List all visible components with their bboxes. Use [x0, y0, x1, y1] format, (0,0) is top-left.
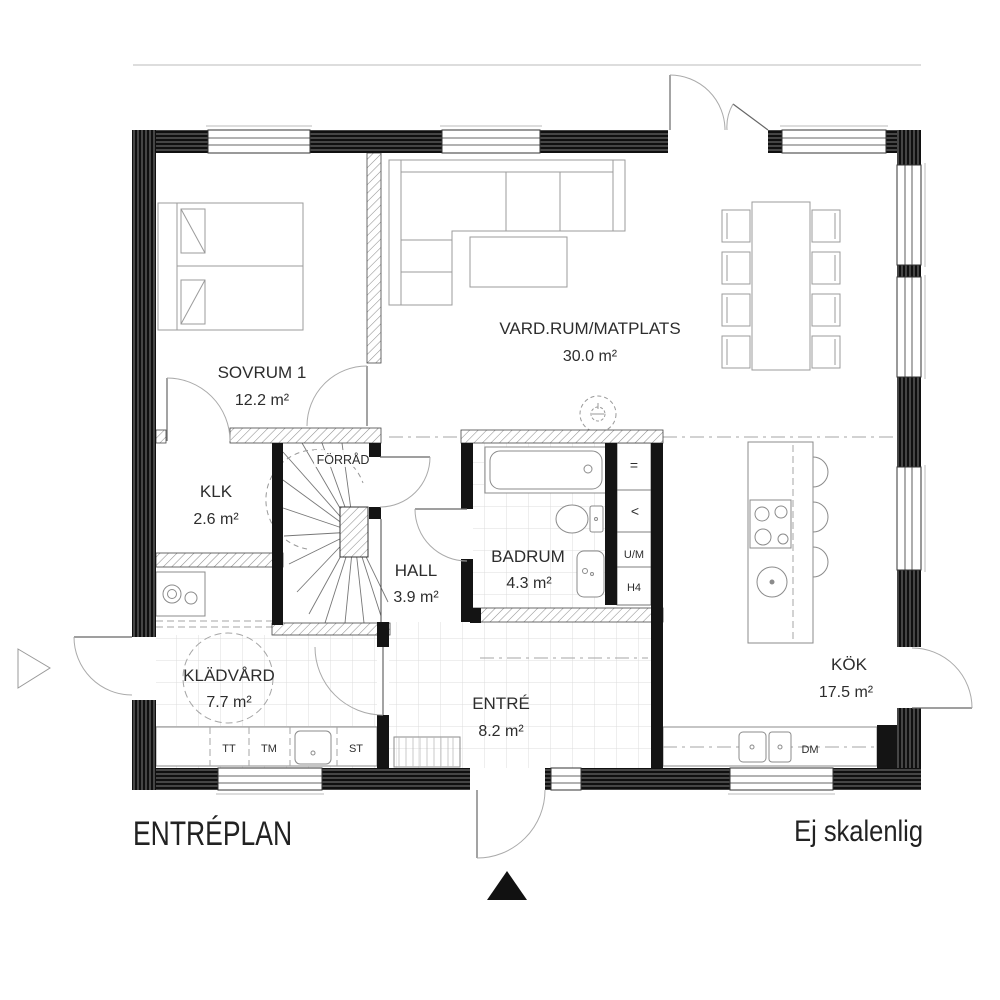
room-label-entre: ENTRÉ — [472, 694, 530, 713]
window — [216, 768, 324, 794]
window — [728, 768, 835, 794]
window — [440, 126, 542, 153]
room-area-klk: 2.6 m² — [193, 511, 239, 528]
bed — [158, 203, 303, 330]
window — [897, 275, 925, 379]
washer-dryer-cabinet-label: U/M — [624, 549, 644, 561]
room-area-badrum: 4.3 m² — [506, 575, 552, 592]
main-entrance-door — [477, 790, 545, 858]
scale-note: Ej skalenlig — [794, 814, 923, 847]
dining-table — [752, 202, 810, 370]
laundry-sink — [295, 731, 331, 764]
kitchen-sink — [739, 732, 791, 762]
room-area-hall: 3.9 m² — [393, 589, 439, 606]
room-label-forrad: FÖRRÅD — [317, 452, 370, 467]
utility-closet-column: = < U/M H4 — [617, 443, 651, 605]
room-area-kladvard: 7.7 m² — [206, 694, 252, 711]
window — [780, 126, 888, 153]
toilet — [556, 505, 603, 533]
room-label-klk: KLK — [200, 482, 233, 501]
room-label-hall: HALL — [395, 561, 438, 580]
kitchen-side-door — [912, 648, 972, 708]
window — [206, 126, 312, 153]
window — [551, 768, 581, 790]
cabinet-h4-label: H4 — [627, 582, 641, 594]
dishwasher-label: DM — [801, 744, 818, 756]
window — [897, 465, 925, 572]
room-label-badrum: BADRUM — [491, 547, 565, 566]
laundry-exterior-door — [74, 637, 132, 695]
bathroom-sink — [577, 551, 604, 597]
cleaning-closet-label: ST — [349, 743, 363, 755]
room-label-kladvard: KLÄDVÅRD — [183, 666, 275, 685]
shelf-symbol: = — [630, 457, 638, 473]
bathtub — [485, 447, 607, 493]
window — [897, 163, 925, 267]
room-area-kok: 17.5 m² — [819, 684, 874, 701]
plan-title: ENTRÉPLAN — [133, 814, 292, 853]
scale-note-group: Ej skalenlig — [794, 814, 923, 847]
entrance-marker-icon — [487, 871, 527, 900]
kitchen-counter: DM — [663, 727, 877, 766]
room-area-entre: 8.2 m² — [478, 723, 524, 740]
cooktop — [750, 500, 791, 548]
room-label-vardagsrum: VARD.RUM/MATPLATS — [499, 319, 680, 338]
washer-label: TM — [261, 743, 277, 755]
floor-plan-page: DM TT TM ST — [0, 0, 1000, 1000]
coffee-table — [470, 237, 567, 287]
rail-symbol: < — [631, 503, 639, 519]
room-label-kok: KÖK — [831, 655, 868, 674]
terrace-double-door — [670, 75, 768, 130]
stair-newel — [340, 507, 368, 557]
dryer-label: TT — [222, 743, 236, 755]
room-area-sovrum: 12.2 m² — [235, 392, 290, 409]
plan-title-group: ENTRÉPLAN — [133, 814, 292, 853]
room-label-sovrum: SOVRUM 1 — [218, 363, 307, 382]
side-entrance-arrow-icon — [18, 649, 50, 688]
room-area-vardagsrum: 30.0 m² — [563, 348, 618, 365]
floor-plan-drawing: DM TT TM ST — [0, 0, 1000, 1000]
laundry-counter: TT TM ST — [156, 727, 377, 766]
